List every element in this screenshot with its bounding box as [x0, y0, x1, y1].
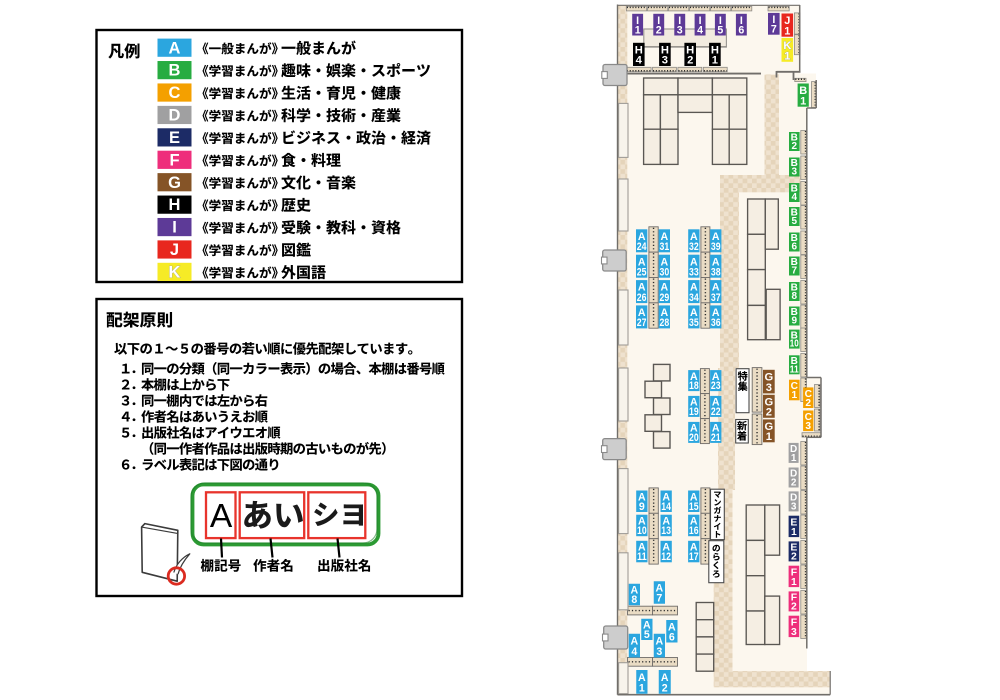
- svg-text:6: 6: [792, 242, 798, 253]
- svg-text:3: 3: [791, 501, 797, 512]
- svg-text:3: 3: [792, 167, 798, 178]
- svg-text:10: 10: [637, 525, 647, 537]
- svg-text:21: 21: [711, 432, 721, 444]
- svg-text:8: 8: [631, 594, 637, 606]
- svg-text:23: 23: [711, 380, 721, 392]
- svg-text:1: 1: [791, 453, 797, 464]
- svg-text:3: 3: [662, 55, 668, 67]
- svg-text:3: 3: [805, 421, 811, 432]
- svg-text:14: 14: [661, 501, 671, 513]
- svg-text:34: 34: [689, 292, 699, 304]
- svg-text:7: 7: [792, 266, 798, 277]
- svg-text:B: B: [169, 62, 181, 80]
- svg-text:18: 18: [689, 380, 699, 392]
- svg-text:11: 11: [637, 551, 647, 563]
- svg-text:3: 3: [677, 24, 683, 36]
- svg-text:9: 9: [792, 316, 798, 327]
- svg-text:8: 8: [792, 291, 798, 302]
- svg-text:F: F: [169, 151, 179, 169]
- svg-text:2: 2: [791, 478, 797, 489]
- svg-text:11: 11: [790, 364, 799, 375]
- svg-text:28: 28: [660, 317, 670, 329]
- svg-text:24: 24: [637, 241, 647, 253]
- svg-text:13: 13: [661, 525, 671, 537]
- svg-text:7: 7: [656, 593, 662, 605]
- svg-text:31: 31: [660, 241, 670, 253]
- svg-text:1: 1: [784, 50, 790, 62]
- svg-text:6: 6: [669, 631, 675, 643]
- svg-text:4: 4: [697, 24, 703, 36]
- svg-text:16: 16: [689, 525, 699, 537]
- svg-text:12: 12: [661, 551, 671, 563]
- svg-text:A: A: [169, 39, 181, 57]
- svg-text:9: 9: [639, 501, 645, 513]
- svg-text:2: 2: [791, 601, 797, 612]
- svg-text:19: 19: [689, 406, 699, 418]
- svg-text:35: 35: [689, 317, 699, 329]
- svg-text:1: 1: [784, 25, 790, 37]
- svg-text:1: 1: [766, 431, 772, 443]
- svg-text:G: G: [168, 174, 181, 192]
- svg-text:2: 2: [791, 551, 797, 562]
- svg-text:17: 17: [689, 551, 699, 563]
- svg-text:1: 1: [791, 390, 797, 401]
- svg-text:22: 22: [711, 406, 721, 418]
- svg-text:4: 4: [631, 646, 637, 658]
- svg-text:5: 5: [644, 629, 650, 641]
- svg-text:I: I: [172, 219, 177, 237]
- svg-text:7: 7: [771, 24, 777, 36]
- svg-text:1: 1: [791, 577, 797, 588]
- svg-text:2: 2: [792, 141, 798, 152]
- svg-text:3: 3: [766, 382, 772, 394]
- svg-text:2: 2: [687, 55, 693, 67]
- svg-text:4: 4: [636, 55, 643, 67]
- svg-text:1: 1: [635, 24, 641, 36]
- svg-text:20: 20: [689, 432, 699, 444]
- svg-text:3: 3: [656, 646, 662, 658]
- svg-text:10: 10: [790, 339, 799, 350]
- svg-text:38: 38: [711, 266, 721, 278]
- svg-text:A: A: [210, 498, 233, 535]
- svg-text:4: 4: [792, 192, 798, 203]
- svg-text:5: 5: [792, 216, 798, 227]
- svg-text:3: 3: [791, 627, 797, 638]
- svg-text:33: 33: [689, 266, 699, 278]
- svg-text:27: 27: [637, 317, 647, 329]
- svg-text:D: D: [169, 107, 181, 125]
- svg-text:2: 2: [805, 398, 811, 409]
- svg-text:C: C: [169, 84, 181, 102]
- svg-text:1: 1: [712, 55, 718, 67]
- svg-text:2: 2: [662, 682, 668, 694]
- svg-text:26: 26: [637, 292, 647, 304]
- svg-text:32: 32: [689, 241, 699, 253]
- svg-text:15: 15: [689, 501, 699, 513]
- svg-text:1: 1: [639, 682, 645, 694]
- svg-text:36: 36: [711, 317, 721, 329]
- svg-text:30: 30: [660, 266, 670, 278]
- svg-text:H: H: [169, 196, 181, 214]
- svg-text:29: 29: [660, 292, 670, 304]
- svg-text:5: 5: [717, 24, 723, 36]
- svg-text:2: 2: [766, 407, 772, 419]
- svg-text:K: K: [169, 264, 181, 282]
- svg-text:37: 37: [711, 292, 721, 304]
- svg-text:6: 6: [738, 24, 744, 36]
- svg-text:2: 2: [656, 24, 662, 36]
- svg-text:25: 25: [637, 266, 647, 278]
- svg-text:E: E: [169, 129, 180, 147]
- svg-text:1: 1: [791, 527, 797, 538]
- svg-text:J: J: [170, 241, 179, 259]
- svg-text:1: 1: [800, 95, 806, 107]
- svg-text:39: 39: [711, 241, 721, 253]
